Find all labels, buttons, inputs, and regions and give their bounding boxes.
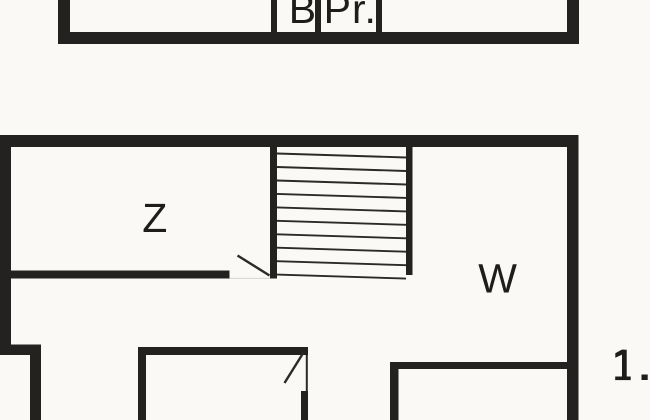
svg-text:Pr.: Pr.: [324, 0, 377, 32]
svg-text:W: W: [478, 255, 517, 301]
svg-text:Z: Z: [142, 195, 167, 241]
svg-text:B: B: [289, 0, 316, 32]
